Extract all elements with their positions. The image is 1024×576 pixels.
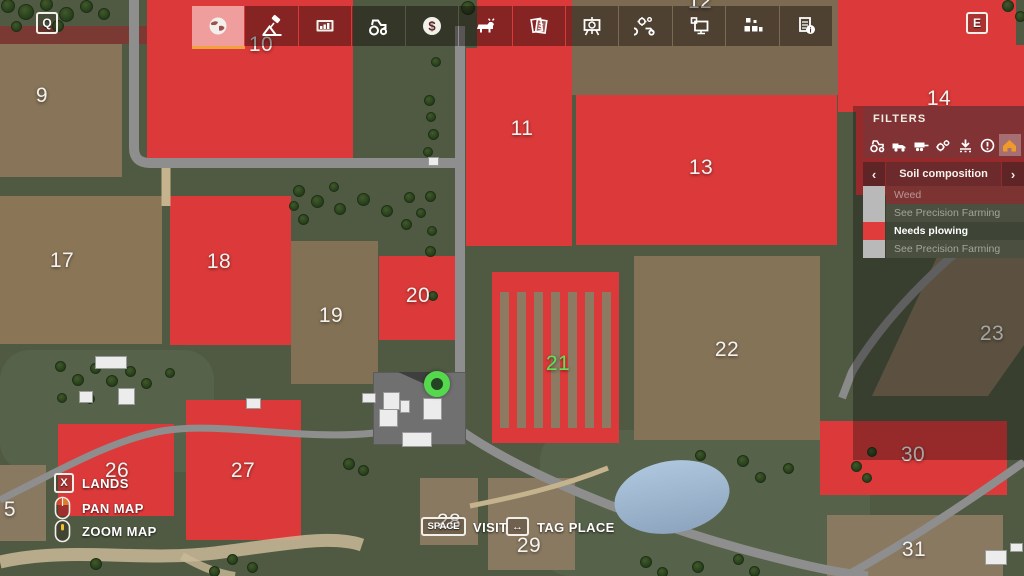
papers-icon (527, 14, 551, 38)
field-label-22: 22 (715, 338, 739, 362)
alert-icon (979, 138, 996, 153)
easel-icon (580, 14, 604, 38)
tab-contracts[interactable] (513, 6, 565, 46)
filter-gears[interactable] (932, 134, 954, 156)
tab-placeables[interactable] (673, 6, 725, 46)
field-label-31: 31 (902, 538, 926, 562)
tab-vehicles[interactable] (352, 6, 404, 46)
tab-maintenance[interactable] (619, 6, 671, 46)
field-label-29: 29 (517, 534, 541, 558)
visit-key-label: SPACE (427, 521, 459, 532)
mouse-pan-icon (54, 496, 71, 520)
prev-tab-key-hint: Q (36, 12, 58, 34)
lands-hint-label: LANDS (82, 476, 129, 491)
tractor-icon (366, 14, 390, 38)
legend-label: Needs plowing (886, 222, 1024, 240)
field-label-18: 18 (207, 250, 231, 274)
field-label-21: 21 (546, 352, 570, 376)
pan-map-hint-label: PAN MAP (82, 501, 144, 516)
filter-row[interactable]: Needs plowing (863, 222, 1024, 240)
zoom-map-hint-label: ZOOM MAP (82, 524, 157, 539)
tab-storage[interactable] (726, 6, 778, 46)
tractor-icon (869, 138, 886, 153)
machine-gear-icon (634, 14, 658, 38)
satellite-icon (260, 14, 284, 38)
filter-icons-row (863, 132, 1024, 158)
tag-place-key-hint: ↔ (506, 517, 529, 536)
selected-tab-underline (192, 46, 245, 49)
map-screen: 59101112131417181920212223262728293031 Q… (0, 0, 1024, 576)
mouse-zoom-icon (54, 519, 71, 543)
next-tab-key-hint: E (966, 12, 988, 34)
field-label-5: 5 (4, 498, 16, 522)
money-icon: $ (420, 14, 444, 38)
filter-tractor[interactable] (866, 134, 888, 156)
svg-text:$: $ (428, 19, 436, 34)
category-label: Soil composition (886, 162, 1001, 186)
filters-panel: FILTERS (863, 106, 1024, 258)
filter-row[interactable]: See Precision Farming (863, 240, 1024, 258)
tag-place-hint-label: TAG PLACE (537, 520, 615, 535)
cow-icon (473, 14, 497, 38)
field-label-17: 17 (50, 249, 74, 273)
filter-row[interactable]: Weed (863, 186, 1024, 204)
house-icon (1001, 138, 1018, 153)
tab-precision-farming[interactable] (245, 6, 297, 46)
tab-productions[interactable] (566, 6, 618, 46)
filter-house[interactable] (999, 134, 1021, 156)
legend-label: See Precision Farming (886, 204, 1024, 222)
next-tab-key-label: E (973, 16, 981, 30)
filter-trailer[interactable] (910, 134, 932, 156)
legend-swatch (863, 240, 885, 258)
price-list-icon: i (794, 14, 818, 38)
bar-chart-icon (313, 14, 337, 38)
tag-key-label: ↔ (512, 521, 523, 533)
filter-unload[interactable] (955, 134, 977, 156)
tab-map[interactable] (192, 6, 244, 46)
field-label-19: 19 (319, 304, 343, 328)
lands-key-hint: X (54, 473, 74, 493)
legend-swatch (863, 204, 885, 222)
tab-prices[interactable]: i (780, 6, 832, 46)
gears-icon (935, 138, 952, 153)
legend-swatch (863, 186, 885, 204)
tab-animals[interactable] (459, 6, 511, 46)
visit-hint-label: VISIT (473, 520, 508, 535)
filter-rows: Weed See Precision Farming Needs plowing… (863, 186, 1024, 258)
field-label-11: 11 (511, 117, 534, 141)
prev-tab-key-label: Q (42, 16, 51, 30)
lands-key-label: X (60, 477, 67, 489)
truck-icon (891, 138, 908, 153)
filter-row[interactable]: See Precision Farming (863, 204, 1024, 222)
filter-truck[interactable] (888, 134, 910, 156)
visit-key-hint: SPACE (421, 517, 466, 536)
field-label-9: 9 (36, 84, 48, 108)
category-prev-button[interactable]: ‹ (863, 162, 885, 186)
globe-icon (206, 14, 230, 38)
field-label-20: 20 (406, 284, 430, 308)
monitor-icon (687, 14, 711, 38)
tab-finances[interactable]: $ (406, 6, 458, 46)
unload-arrow-icon (957, 138, 974, 153)
filter-category-selector: ‹ Soil composition › (863, 162, 1024, 186)
legend-label: See Precision Farming (886, 240, 1024, 258)
field-label-13: 13 (689, 156, 713, 180)
filters-title: FILTERS (863, 106, 1024, 132)
filter-alert[interactable] (977, 134, 999, 156)
svg-text:i: i (809, 26, 811, 35)
trailer-icon (913, 138, 930, 153)
category-next-button[interactable]: › (1002, 162, 1024, 186)
legend-swatch (863, 222, 885, 240)
field-label-27: 27 (231, 459, 255, 483)
top-toolbar: $ (192, 6, 833, 46)
legend-label: Weed (886, 186, 1024, 204)
tab-statistics[interactable] (299, 6, 351, 46)
blocks-icon (740, 14, 764, 38)
